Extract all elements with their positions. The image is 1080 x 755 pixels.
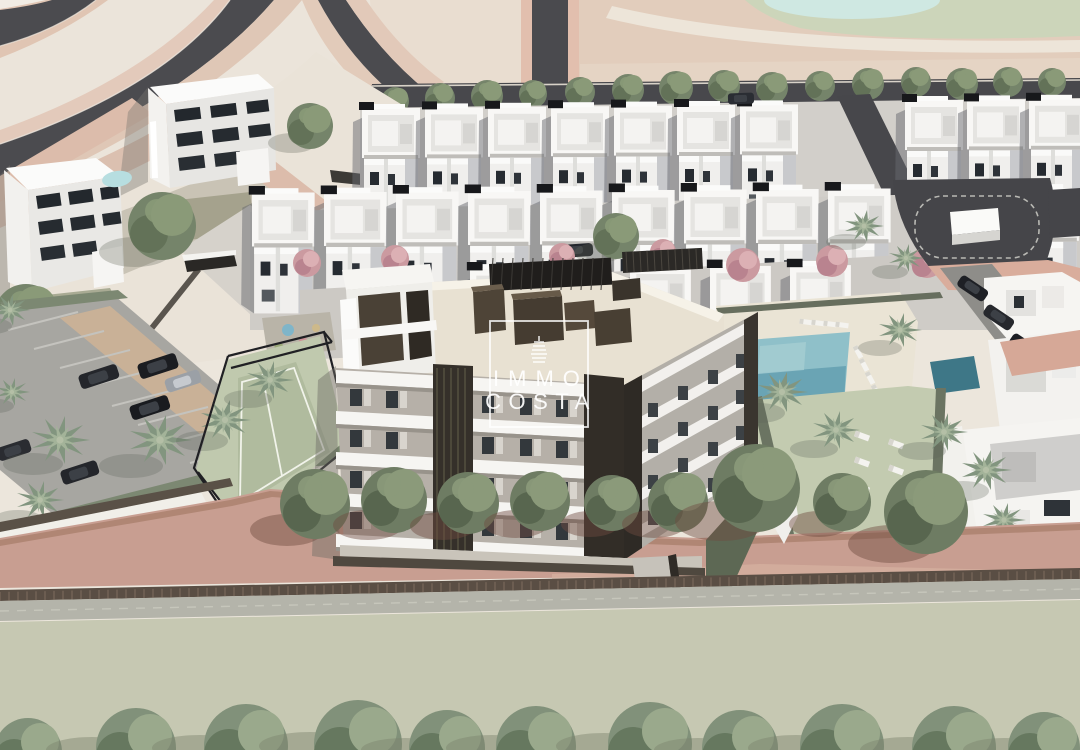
svg-text:IMMO: IMMO xyxy=(493,366,589,391)
svg-text:CŌSTA: CŌSTA xyxy=(485,389,597,414)
